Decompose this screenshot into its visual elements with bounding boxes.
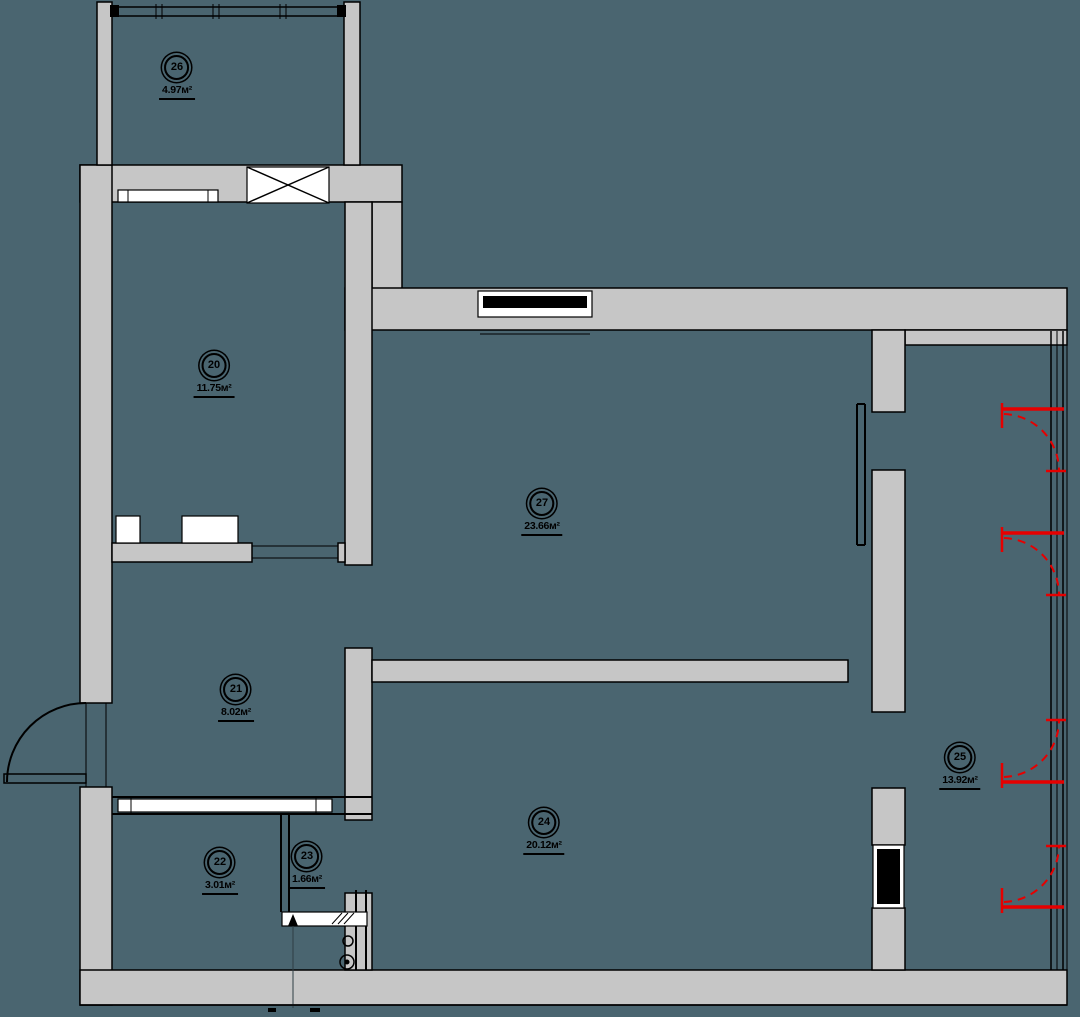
room-number-badge: 24 xyxy=(531,810,556,835)
room-number-badge: 23 xyxy=(295,844,320,869)
room-area-text: 13.92м² xyxy=(939,774,980,790)
wardrobe-room20 xyxy=(116,516,238,543)
room-area-text: 20.12м² xyxy=(523,839,564,855)
loggia-glazing-icon xyxy=(1051,331,1067,970)
room-label-21: 21 8.02м² xyxy=(218,677,254,722)
window-room27-east-icon xyxy=(857,404,865,545)
room-label-27: 27 23.66м² xyxy=(521,491,562,536)
door-swing-4-icon xyxy=(1002,846,1066,913)
room-number-badge: 25 xyxy=(947,745,972,770)
room-area-text: 23.66м² xyxy=(521,520,562,536)
room-label-26: 26 4.97м² xyxy=(159,55,195,100)
room-number-badge: 22 xyxy=(208,850,233,875)
room-label-25: 25 13.92м² xyxy=(939,745,980,790)
room-label-24: 24 20.12м² xyxy=(523,810,564,855)
door-swing-1-icon xyxy=(1002,403,1066,471)
room-number-badge: 27 xyxy=(529,491,554,516)
door-opening-room20 xyxy=(252,546,338,558)
room-area-text: 4.97м² xyxy=(159,84,195,100)
dimension-marks xyxy=(80,1005,1067,1012)
room-number-badge: 26 xyxy=(165,55,190,80)
balcony-structure xyxy=(97,2,360,165)
entry-door-swing-icon xyxy=(4,703,106,787)
door-opening-hall21 xyxy=(118,797,332,814)
room-label-20: 20 11.75м² xyxy=(194,353,235,398)
room-area-text: 8.02м² xyxy=(218,706,254,722)
door-swing-3-icon xyxy=(1002,720,1066,788)
room-area-text: 1.66м² xyxy=(289,873,325,889)
window-room24-east-icon xyxy=(873,845,904,908)
room-area-text: 3.01м² xyxy=(202,879,238,895)
balcony-door-opening xyxy=(118,190,218,202)
room-label-22: 22 3.01м² xyxy=(202,850,238,895)
loggia-door-swings xyxy=(1002,403,1066,913)
door-swing-2-icon xyxy=(1002,527,1066,595)
room-label-23: 23 1.66м² xyxy=(289,844,325,889)
balcony-railing-icon xyxy=(112,4,345,19)
floor-plan: 26 4.97м² 20 11.75м² 27 23.66м² 21 8.02м… xyxy=(0,0,1080,1017)
room-number-badge: 21 xyxy=(224,677,249,702)
room-number-badge: 20 xyxy=(202,353,227,378)
vent-shaft-x-icon xyxy=(247,167,329,203)
room-area-text: 11.75м² xyxy=(194,382,235,398)
